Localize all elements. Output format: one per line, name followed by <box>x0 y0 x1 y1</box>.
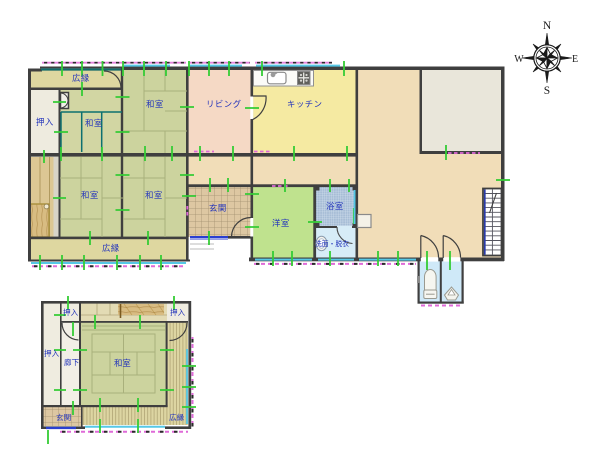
svg-text:キッチン: キッチン <box>287 99 323 109</box>
svg-text:押入: 押入 <box>170 307 186 317</box>
svg-text:E: E <box>572 54 578 65</box>
svg-text:洋室: 洋室 <box>272 218 290 228</box>
svg-text:広縁: 広縁 <box>102 243 120 253</box>
svg-text:和室: 和室 <box>146 99 164 109</box>
svg-text:N: N <box>543 20 552 32</box>
svg-text:広縁: 広縁 <box>169 412 185 422</box>
svg-text:玄関: 玄関 <box>56 412 71 422</box>
svg-text:押入: 押入 <box>44 348 60 358</box>
svg-text:押入: 押入 <box>63 307 79 317</box>
svg-text:W: W <box>514 54 524 65</box>
svg-text:リビング: リビング <box>206 99 242 109</box>
svg-text:廊下: 廊下 <box>64 357 80 367</box>
svg-text:広縁: 広縁 <box>72 73 90 83</box>
svg-text:押入: 押入 <box>36 117 54 127</box>
svg-text:S: S <box>544 85 550 97</box>
svg-text:和室: 和室 <box>145 190 163 200</box>
svg-text:洗面・脱衣: 洗面・脱衣 <box>315 239 349 248</box>
svg-text:和室: 和室 <box>81 190 99 200</box>
svg-text:玄関: 玄関 <box>209 203 227 213</box>
svg-text:和室: 和室 <box>85 118 103 128</box>
svg-text:浴室: 浴室 <box>326 201 344 211</box>
svg-text:和室: 和室 <box>114 358 131 368</box>
